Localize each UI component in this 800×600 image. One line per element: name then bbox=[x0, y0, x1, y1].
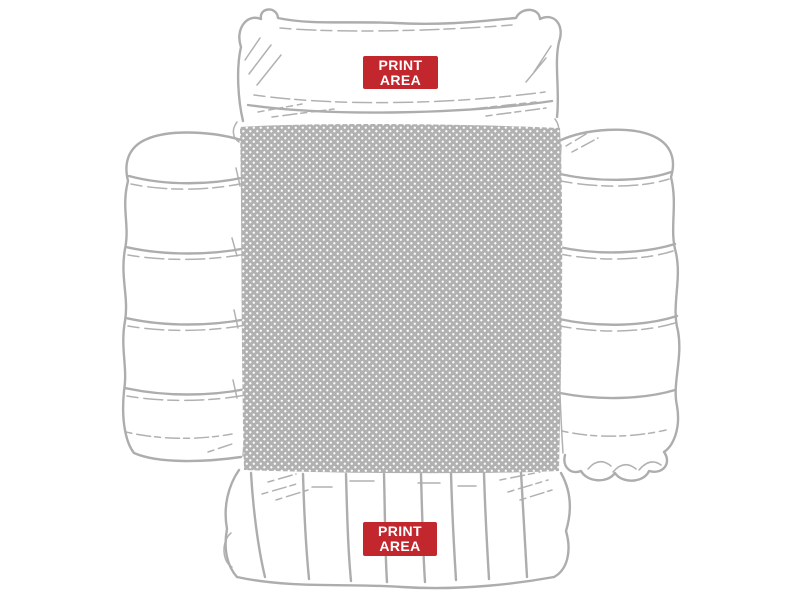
product-print-template: PRINT AREA PRINT AREA bbox=[0, 0, 800, 600]
print-area-label-bottom-line2: AREA bbox=[379, 539, 420, 554]
right-sleeve-sketch bbox=[558, 130, 680, 481]
left-sleeve-sketch bbox=[123, 133, 249, 462]
print-area-label-top-line1: PRINT bbox=[379, 58, 423, 73]
print-area-label-bottom: PRINT AREA bbox=[363, 522, 437, 556]
print-area-label-top: PRINT AREA bbox=[363, 56, 438, 89]
print-area-pattern bbox=[240, 124, 562, 473]
print-area-label-bottom-line1: PRINT bbox=[378, 524, 422, 539]
jacket-illustration bbox=[0, 0, 800, 600]
print-area-label-top-line2: AREA bbox=[380, 73, 421, 88]
